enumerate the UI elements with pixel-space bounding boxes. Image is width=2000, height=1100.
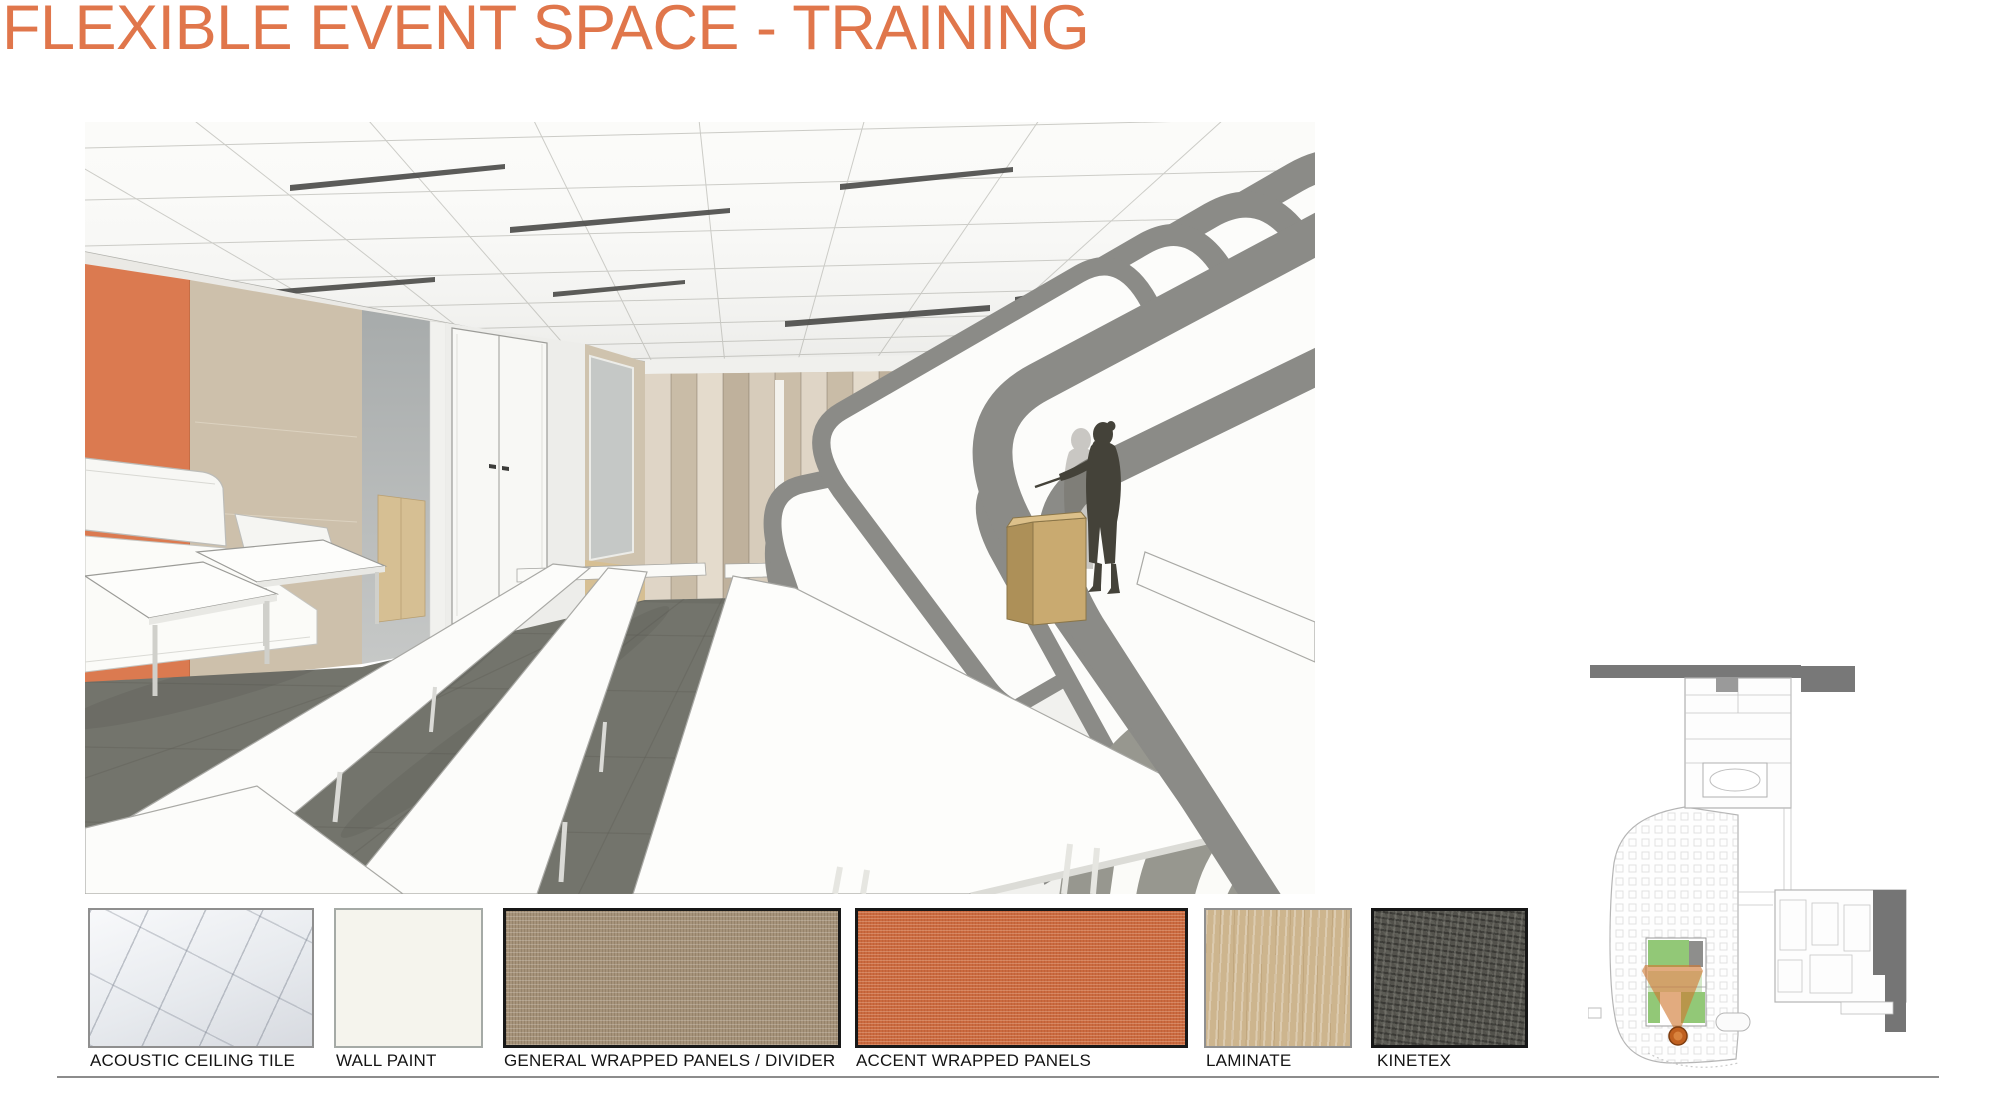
material-label: GENERAL WRAPPED PANELS / DIVIDER — [504, 1051, 835, 1071]
rendering-scene — [85, 122, 1315, 894]
plan-walls — [1588, 665, 1906, 1067]
material-label: WALL PAINT — [336, 1051, 437, 1071]
floor-plan — [1588, 655, 1908, 1085]
podium — [1007, 512, 1086, 625]
training-room-rendering — [85, 122, 1315, 894]
material-swatch-laminate — [1204, 908, 1352, 1048]
slide-title: FLEXIBLE EVENT SPACE - TRAINING — [2, 0, 1089, 64]
material-swatch-accent-wrapped-panels — [855, 908, 1188, 1048]
presentation-slide: FLEXIBLE EVENT SPACE - TRAINING — [0, 0, 2000, 1100]
floor-plan-thumbnail — [1588, 655, 1908, 1085]
material-label: LAMINATE — [1206, 1051, 1291, 1071]
material-label: KINETEX — [1377, 1051, 1451, 1071]
material-swatch-acoustic-ceiling-tile — [88, 908, 314, 1048]
material-swatch-kinetex — [1371, 908, 1528, 1048]
footer-divider — [57, 1076, 1939, 1078]
material-label: ACCENT WRAPPED PANELS — [856, 1051, 1091, 1071]
material-swatch-wall-paint — [334, 908, 483, 1048]
material-label: ACOUSTIC CEILING TILE — [90, 1051, 295, 1071]
material-swatch-general-wrapped-panels — [503, 908, 841, 1048]
